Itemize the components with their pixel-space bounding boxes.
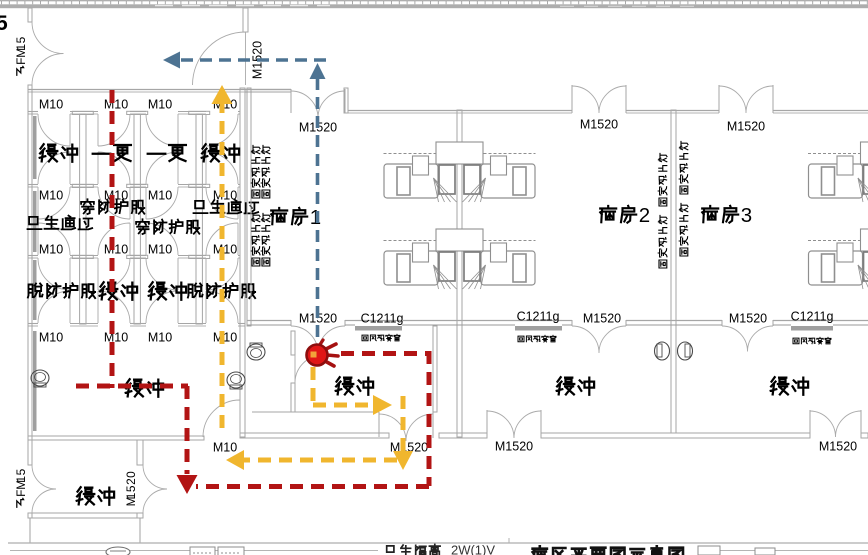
svg-text:M10: M10 [148,243,172,257]
svg-text:M10: M10 [104,98,128,112]
svg-text:M1520: M1520 [495,440,533,454]
svg-text:M1520: M1520 [727,120,765,134]
svg-text:5: 5 [14,36,28,43]
svg-text:M1520: M1520 [729,312,767,326]
svg-text:M10: M10 [104,243,128,257]
svg-text:5: 5 [124,485,138,492]
svg-text:3: 3 [741,204,752,227]
svg-text:M10: M10 [39,331,63,345]
svg-text:1: 1 [124,492,138,499]
svg-text:2W(1)V: 2W(1)V [451,543,495,555]
svg-text:M10: M10 [213,189,237,203]
svg-text:M10: M10 [213,243,237,257]
svg-text:1: 1 [14,44,28,51]
svg-text:M10: M10 [148,331,172,345]
svg-text:1: 1 [14,476,28,483]
svg-text:M1520: M1520 [819,440,857,454]
svg-text:2: 2 [639,204,650,227]
svg-text:M1520: M1520 [583,312,621,326]
svg-text:5: 5 [0,12,8,35]
svg-text:C1211g: C1211g [791,310,834,324]
svg-text:M10: M10 [39,243,63,257]
svg-text:5: 5 [14,468,28,475]
svg-text:M10: M10 [39,189,63,203]
svg-text:2: 2 [124,478,138,485]
svg-text:C1211g: C1211g [517,310,560,324]
svg-text:M10: M10 [213,441,237,455]
svg-text:M10: M10 [148,98,172,112]
svg-text:M10: M10 [39,98,63,112]
svg-text:C1211g: C1211g [361,312,404,326]
svg-text:M10: M10 [148,189,172,203]
svg-text:0: 0 [124,471,138,478]
svg-text:M10: M10 [213,331,237,345]
svg-text:M10: M10 [104,331,128,345]
svg-text:M1520: M1520 [580,118,618,132]
svg-text:1: 1 [310,206,321,229]
